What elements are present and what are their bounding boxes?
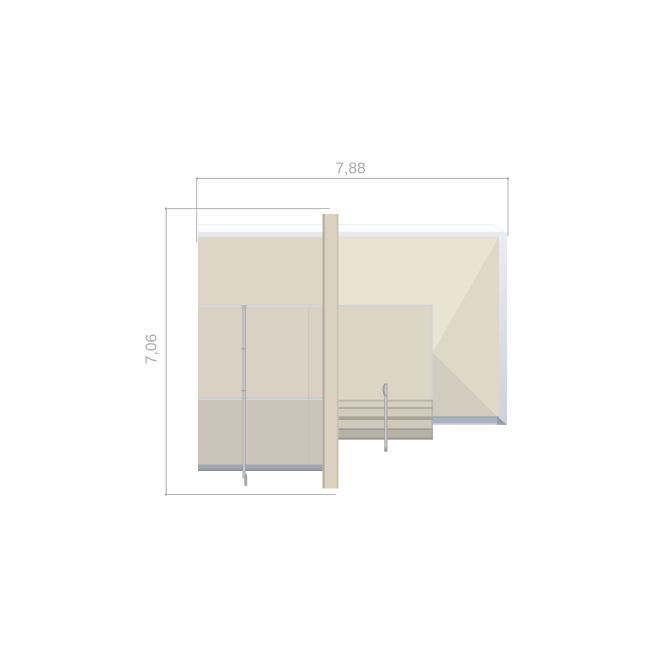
- svg-text:7,88: 7,88: [335, 161, 365, 178]
- svg-text:7,06: 7,06: [144, 334, 161, 364]
